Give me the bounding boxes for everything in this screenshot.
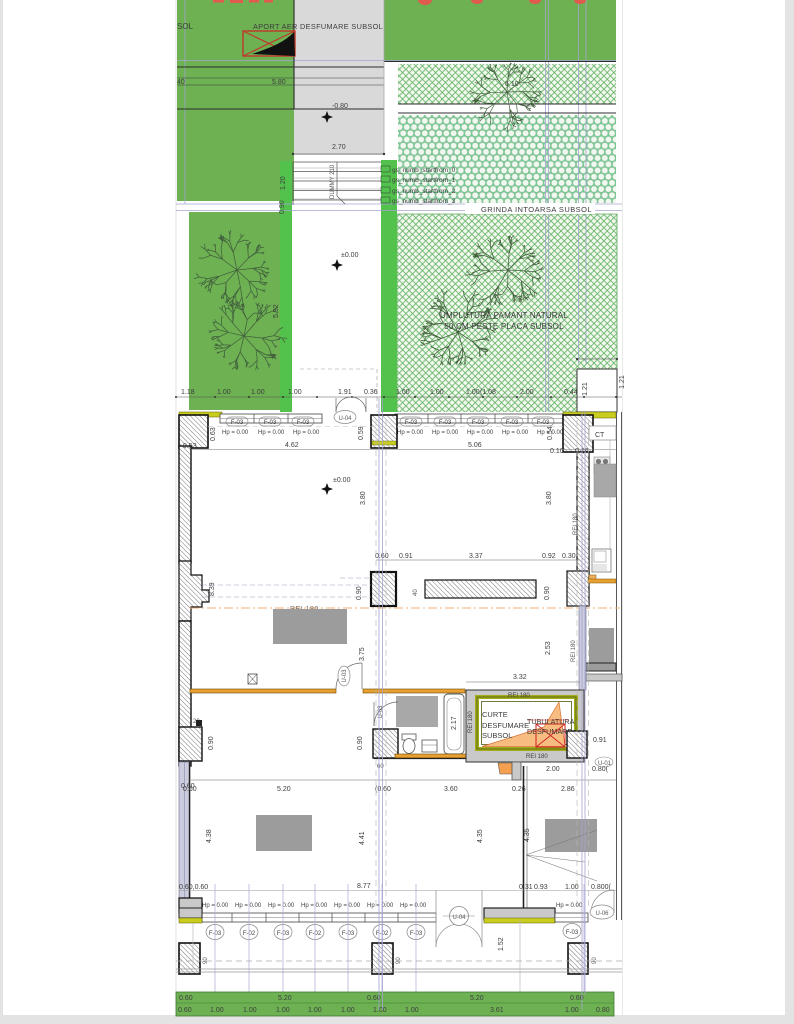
svg-text:Hp = 0.00: Hp = 0.00	[301, 903, 328, 909]
svg-text:Hp = 0.00: Hp = 0.00	[400, 903, 427, 909]
svg-text:Hp = 0.00: Hp = 0.00	[293, 430, 320, 436]
svg-text:gs_numb_startfrom_2: gs_numb_startfrom_2	[392, 188, 456, 195]
svg-text:0.63: 0.63	[210, 427, 217, 441]
svg-text:90: 90	[203, 957, 209, 964]
svg-text:4.35: 4.35	[524, 828, 531, 842]
svg-text:SUBSOL: SUBSOL	[482, 731, 512, 740]
svg-text:5.92: 5.92	[273, 304, 280, 318]
svg-text:90: 90	[396, 957, 402, 964]
svg-text:8.77: 8.77	[357, 883, 371, 890]
svg-text:2.70: 2.70	[332, 144, 346, 151]
svg-text:2.17: 2.17	[451, 716, 458, 730]
svg-text:0.60: 0.60	[178, 1007, 192, 1014]
svg-text:0.90: 0.90	[279, 200, 286, 214]
svg-text:1.21: 1.21	[619, 375, 626, 389]
svg-text:0.44: 0.44	[564, 389, 578, 396]
svg-text:5.80: 5.80	[272, 79, 286, 86]
svg-text:F-03: F-03	[506, 420, 519, 426]
svg-text:0.91: 0.91	[593, 737, 607, 744]
svg-text:4.41: 4.41	[359, 831, 366, 845]
svg-text:0.31: 0.31	[519, 884, 533, 891]
svg-text:Hp = 0.00: Hp = 0.00	[202, 903, 229, 909]
svg-text:1.18: 1.18	[181, 389, 195, 396]
svg-text:0.60: 0.60	[179, 995, 193, 1002]
svg-text:0.80: 0.80	[596, 1007, 610, 1014]
svg-text:F-03: F-03	[472, 420, 485, 426]
svg-text:UMPLUTURA PAMANT NATURAL: UMPLUTURA PAMANT NATURAL	[440, 311, 568, 320]
svg-text:Hp = 0.00: Hp = 0.00	[268, 903, 295, 909]
svg-text:0.60: 0.60	[375, 553, 389, 560]
svg-text:0.59: 0.59	[358, 426, 365, 440]
svg-text:1.00: 1.00	[308, 1007, 322, 1014]
svg-text:3.32: 3.32	[513, 674, 527, 681]
svg-text:1.20: 1.20	[280, 176, 287, 190]
svg-text:CT: CT	[595, 432, 605, 439]
svg-text:4.38: 4.38	[206, 829, 213, 843]
svg-text:REI 180: REI 180	[571, 640, 577, 662]
svg-text:SOL: SOL	[177, 22, 194, 31]
svg-text:0.53: 0.53	[183, 443, 197, 450]
svg-text:F-03: F-03	[297, 420, 310, 426]
svg-text:2.00: 2.00	[520, 389, 534, 396]
svg-text:REI 180: REI 180	[468, 711, 474, 733]
svg-text:2.00: 2.00	[546, 766, 560, 773]
svg-text:Hp = 0.00: Hp = 0.00	[367, 903, 394, 909]
svg-text:Hp = 0.00: Hp = 0.00	[222, 430, 249, 436]
svg-text:0.90: 0.90	[357, 736, 364, 750]
svg-text:REI 180: REI 180	[573, 513, 579, 535]
svg-text:REI 180: REI 180	[508, 693, 530, 699]
svg-text:2.86: 2.86	[561, 786, 575, 793]
svg-text:Hp = 0.00: Hp = 0.00	[502, 430, 529, 436]
svg-text:gs_numb_startfrom_1: gs_numb_startfrom_1	[392, 177, 456, 184]
svg-text:3.80: 3.80	[546, 491, 553, 505]
svg-text:DESFUMARE: DESFUMARE	[482, 721, 529, 730]
svg-text:DESFUMARE: DESFUMARE	[527, 727, 572, 736]
svg-text:APORT AER DESFUMARE SUBSOL: APORT AER DESFUMARE SUBSOL	[253, 22, 383, 31]
svg-text:3.60: 3.60	[444, 786, 458, 793]
svg-text:0.93: 0.93	[534, 884, 548, 891]
svg-text:1.00: 1.00	[288, 389, 302, 396]
svg-text:1.21: 1.21	[582, 382, 589, 396]
svg-text:1.00: 1.00	[565, 884, 579, 891]
svg-text:F-03: F-03	[405, 420, 418, 426]
svg-text:Hp = 0.00: Hp = 0.00	[556, 903, 583, 909]
svg-text:5.20: 5.20	[470, 995, 484, 1002]
svg-text:Hp = 0.00: Hp = 0.00	[334, 903, 361, 909]
svg-text:Hp = 0.00: Hp = 0.00	[258, 430, 285, 436]
svg-text:0.36: 0.36	[364, 389, 378, 396]
svg-text:1.00: 1.00	[251, 389, 265, 396]
svg-text:1.00: 1.00	[396, 389, 410, 396]
svg-text:(0.60: (0.60	[375, 786, 391, 793]
svg-text:4.62: 4.62	[285, 442, 299, 449]
svg-text:2.53: 2.53	[545, 641, 552, 655]
svg-text:1.00: 1.00	[341, 1007, 355, 1014]
svg-text:U-04: U-04	[452, 915, 466, 921]
svg-text:5.20: 5.20	[277, 786, 291, 793]
svg-text:-0.80: -0.80	[332, 103, 348, 110]
svg-text:F-03: F-03	[439, 420, 452, 426]
svg-text:1.00: 1.00	[565, 1007, 579, 1014]
svg-text:DUMMY 210: DUMMY 210	[330, 164, 336, 199]
svg-text:8.39: 8.39	[209, 582, 216, 596]
svg-text:U-04: U-04	[338, 416, 352, 422]
svg-text:0.30: 0.30	[562, 553, 576, 560]
svg-text:1.00: 1.00	[243, 1007, 257, 1014]
svg-text:U-01: U-01	[598, 761, 612, 767]
svg-text:Hp = 0.00: Hp = 0.00	[467, 430, 494, 436]
svg-text:5.20: 5.20	[278, 995, 292, 1002]
svg-text:4.35: 4.35	[477, 829, 484, 843]
svg-text:Hp = 0.00: Hp = 0.00	[397, 430, 424, 436]
svg-text:0.92: 0.92	[542, 553, 556, 560]
svg-text:90: 90	[592, 957, 598, 964]
svg-text:0.10: 0.10	[550, 448, 564, 455]
svg-text:5.06: 5.06	[468, 442, 482, 449]
svg-text:40: 40	[413, 589, 419, 596]
svg-text:F-03: F-03	[231, 420, 244, 426]
svg-text:±0.00: ±0.00	[341, 252, 359, 259]
svg-text:50 CM PESTE PLACA SUBSOL: 50 CM PESTE PLACA SUBSOL	[444, 322, 564, 331]
svg-text:(1.08: (1.08	[480, 389, 496, 396]
svg-text:U-03: U-03	[342, 669, 348, 683]
svg-text:0.90: 0.90	[356, 586, 363, 600]
svg-text:0.54: 0.54	[547, 426, 554, 440]
svg-text:1.00: 1.00	[405, 1007, 419, 1014]
svg-text:1.00: 1.00	[217, 389, 231, 396]
svg-text:GRINDA INTOARSA SUBSOL: GRINDA INTOARSA SUBSOL	[481, 205, 592, 214]
svg-text:±0.00: ±0.00	[333, 477, 351, 484]
svg-text:6.10: 6.10	[505, 81, 519, 88]
svg-text:gs_numb_startfrom_3: gs_numb_startfrom_3	[392, 198, 456, 205]
svg-text:3.61: 3.61	[490, 1007, 504, 1014]
svg-text:F-03: F-03	[537, 420, 550, 426]
svg-text:0.90: 0.90	[208, 736, 215, 750]
svg-text:60: 60	[377, 764, 384, 770]
svg-text:1.52: 1.52	[498, 937, 505, 951]
svg-text:0.800(: 0.800(	[591, 884, 612, 891]
svg-text:0.60,0.60: 0.60,0.60	[179, 884, 208, 891]
svg-text:F-03: F-03	[566, 930, 579, 936]
svg-text:gs_numb_startfrom_0: gs_numb_startfrom_0	[392, 167, 456, 174]
svg-text:REI 180: REI 180	[526, 754, 548, 760]
svg-text:40: 40	[177, 79, 185, 86]
svg-text:3.75: 3.75	[359, 647, 366, 661]
svg-text:U-06: U-06	[595, 911, 609, 917]
svg-text:1.00: 1.00	[466, 389, 480, 396]
svg-text:Hp = 0.00: Hp = 0.00	[235, 903, 262, 909]
svg-text:0.90: 0.90	[544, 586, 551, 600]
svg-text:1.00: 1.00	[373, 1007, 387, 1014]
svg-text:3.80: 3.80	[360, 491, 367, 505]
svg-text:1.00: 1.00	[210, 1007, 224, 1014]
svg-text:Hp = 0.00: Hp = 0.00	[432, 430, 459, 436]
svg-text:0.91: 0.91	[399, 553, 413, 560]
svg-text:1.00: 1.00	[430, 389, 444, 396]
svg-text:0.60: 0.60	[181, 783, 195, 790]
svg-text:1.91: 1.91	[338, 389, 352, 396]
svg-text:TUBULATURA: TUBULATURA	[527, 717, 575, 726]
svg-text:F-03: F-03	[264, 420, 277, 426]
svg-text:1.00: 1.00	[276, 1007, 290, 1014]
svg-text:CURTE: CURTE	[482, 710, 508, 719]
svg-text:3.37: 3.37	[469, 553, 483, 560]
